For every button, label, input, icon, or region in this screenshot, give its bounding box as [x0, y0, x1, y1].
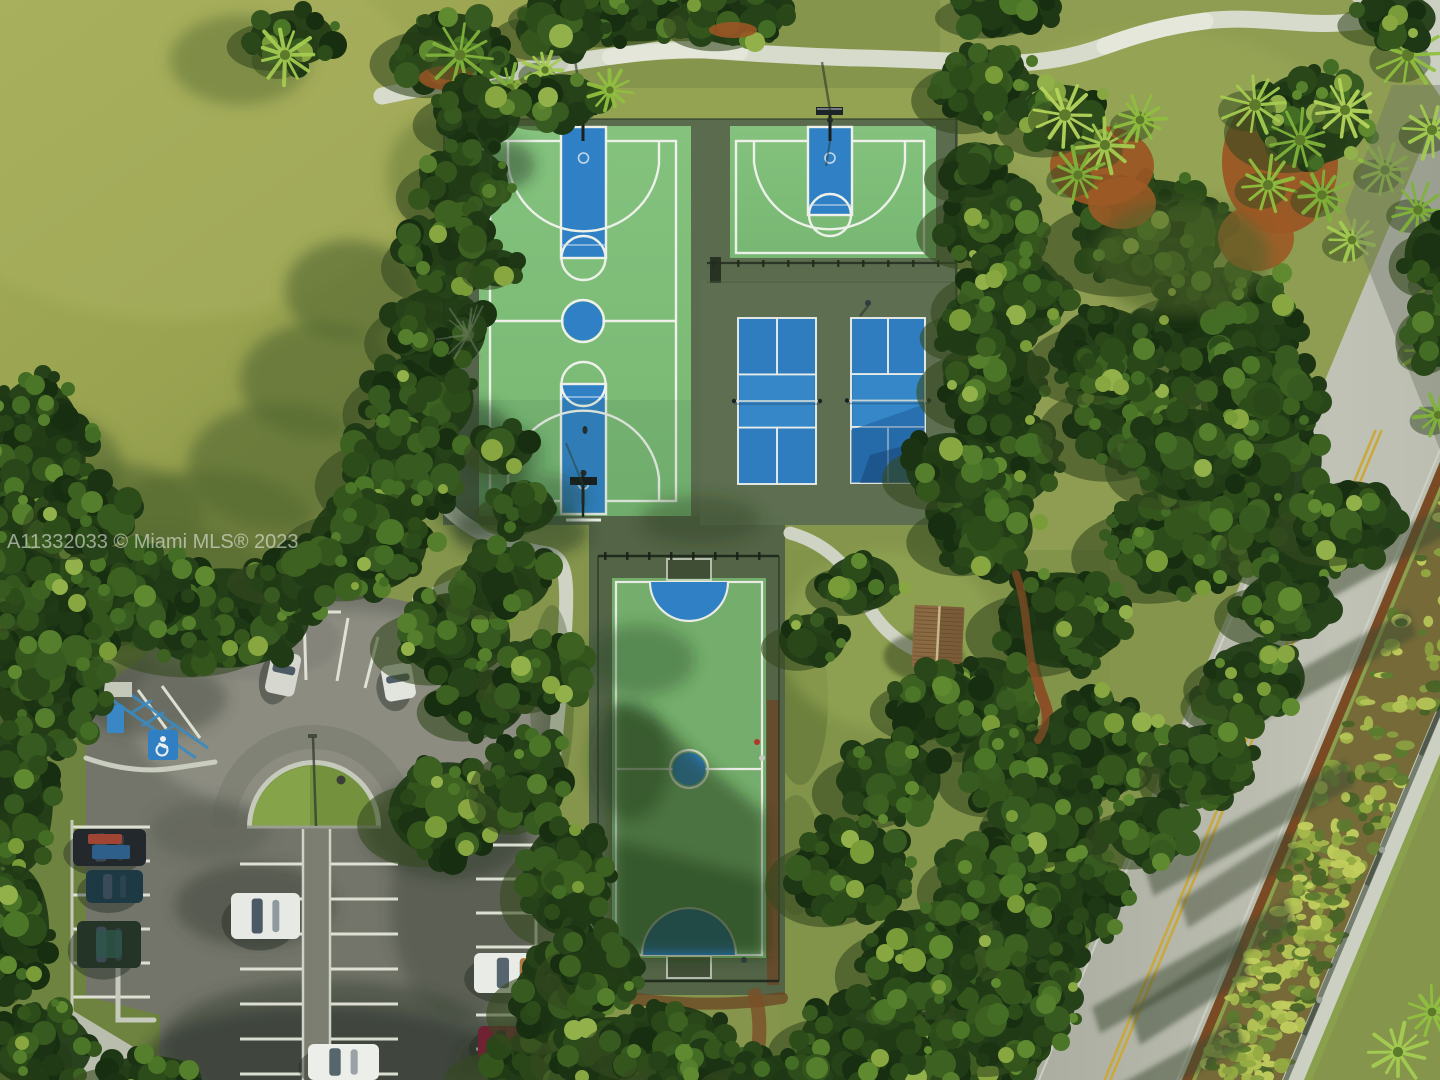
svg-text:A11332033 © Miami MLS® 2023: A11332033 © Miami MLS® 2023 [7, 531, 298, 553]
